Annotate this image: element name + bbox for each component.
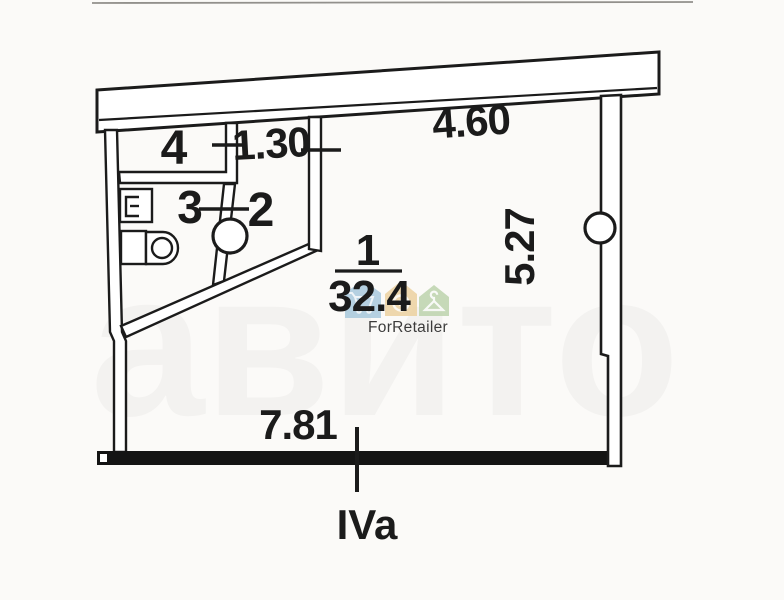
dimension-room2-width: 1.30 <box>231 118 311 169</box>
room2-right-wall <box>309 117 321 251</box>
bottom-wall <box>97 451 611 465</box>
scan-edge-line <box>92 2 693 3</box>
riser-circle-right-wall <box>585 213 615 243</box>
dimension-right-wall: 5.27 <box>496 208 543 286</box>
floor-plan-page: авито <box>0 0 784 600</box>
bottom-wall-notch <box>100 454 107 462</box>
toilet-cistern <box>121 231 146 264</box>
washbasin-fixture <box>120 189 152 222</box>
room1-label: 1 <box>356 226 380 275</box>
ghost-watermark: авито <box>91 230 680 459</box>
floor-plan-drawing: авито <box>0 0 784 600</box>
toilet-fixture <box>121 231 178 264</box>
dimension-bottom-wall: 7.81 <box>259 401 337 448</box>
section-label: IVa <box>337 501 398 548</box>
room2-label: 2 <box>248 184 275 237</box>
room1-area: 32.4 <box>328 272 411 321</box>
dimension-top-wall: 4.60 <box>431 95 512 147</box>
riser-circle-room2 <box>213 219 247 253</box>
room3-label: 3 <box>177 181 203 233</box>
watermark-brand: ForRetailer <box>368 319 448 336</box>
toilet-bowl-circle <box>152 238 172 258</box>
room4-label: 4 <box>161 122 188 175</box>
